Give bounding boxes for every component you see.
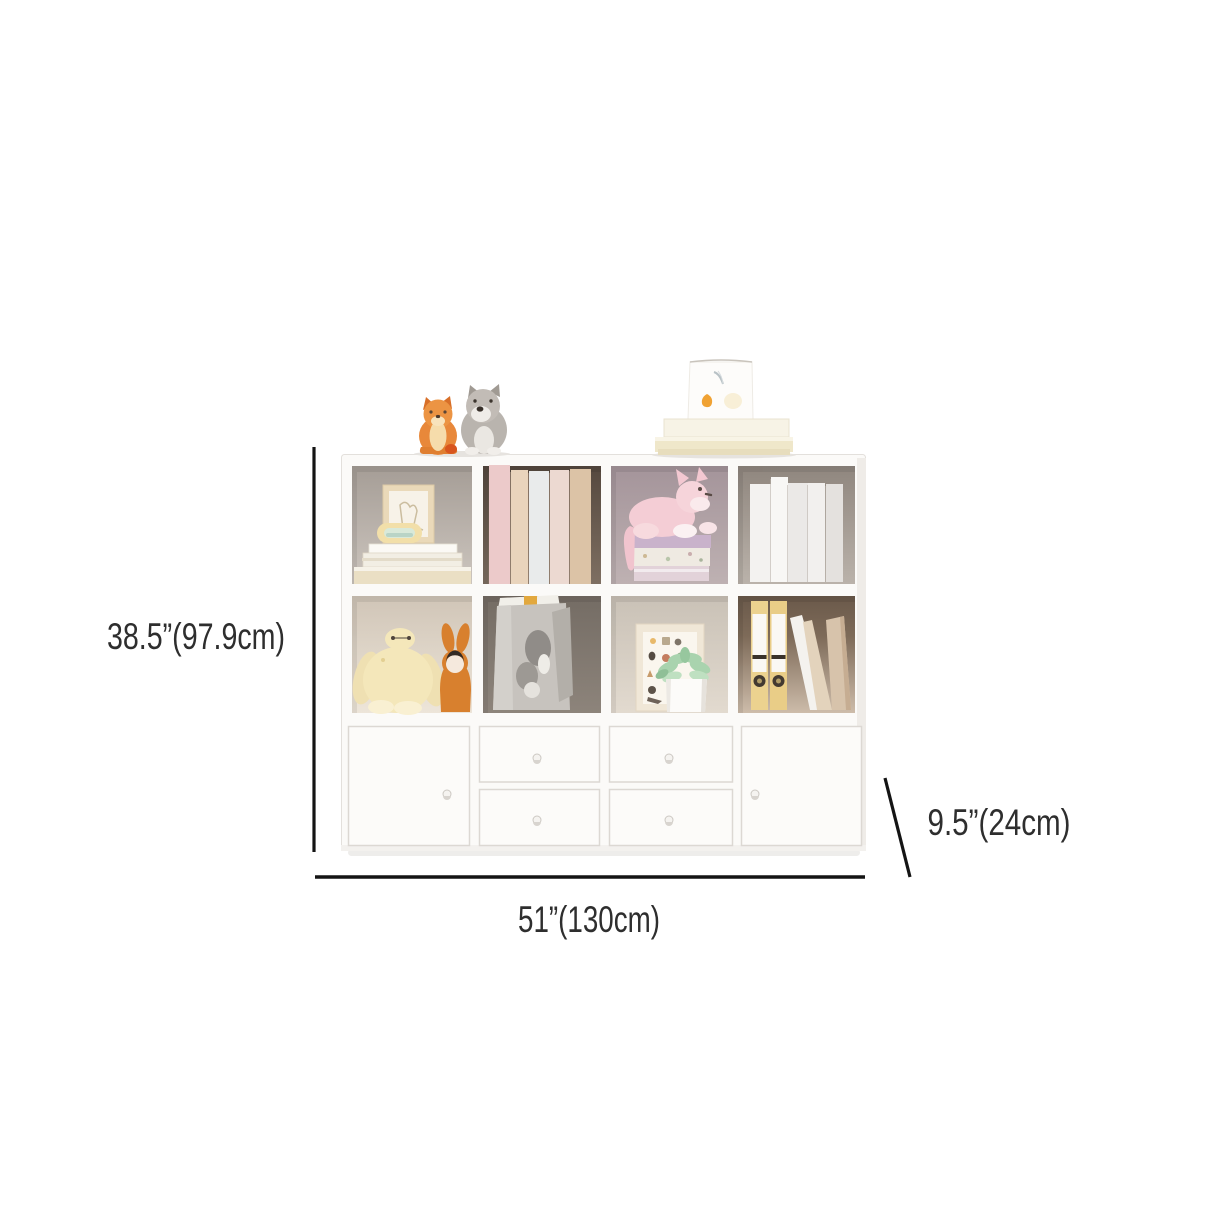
svg-text:51”(130cm): 51”(130cm) <box>518 899 660 940</box>
svg-text:38.5”(97.9cm): 38.5”(97.9cm) <box>107 616 285 657</box>
svg-text:9.5”(24cm): 9.5”(24cm) <box>928 802 1071 843</box>
